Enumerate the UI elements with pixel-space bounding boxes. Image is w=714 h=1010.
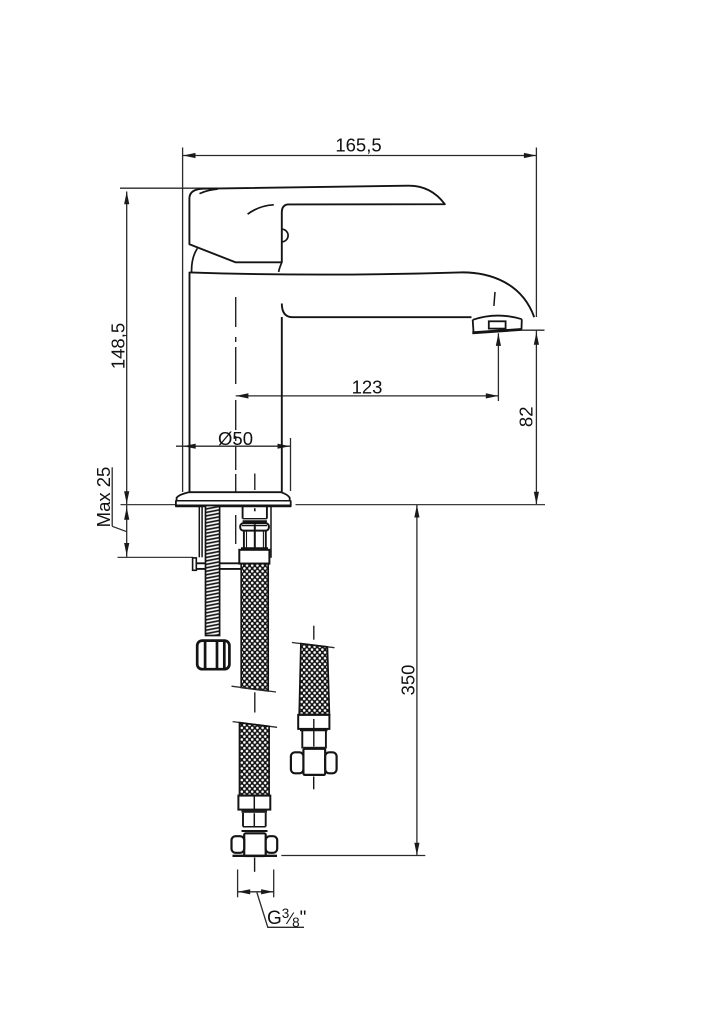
svg-text:165,5: 165,5 [335, 135, 381, 156]
svg-text:G3⁄8": G3⁄8" [267, 906, 306, 930]
svg-text:148,5: 148,5 [107, 323, 128, 369]
svg-text:123: 123 [352, 377, 383, 398]
svg-text:350: 350 [398, 665, 419, 696]
svg-text:Ø50: Ø50 [218, 428, 253, 449]
svg-text:Max 25: Max 25 [93, 467, 114, 528]
svg-text:82: 82 [516, 407, 537, 428]
